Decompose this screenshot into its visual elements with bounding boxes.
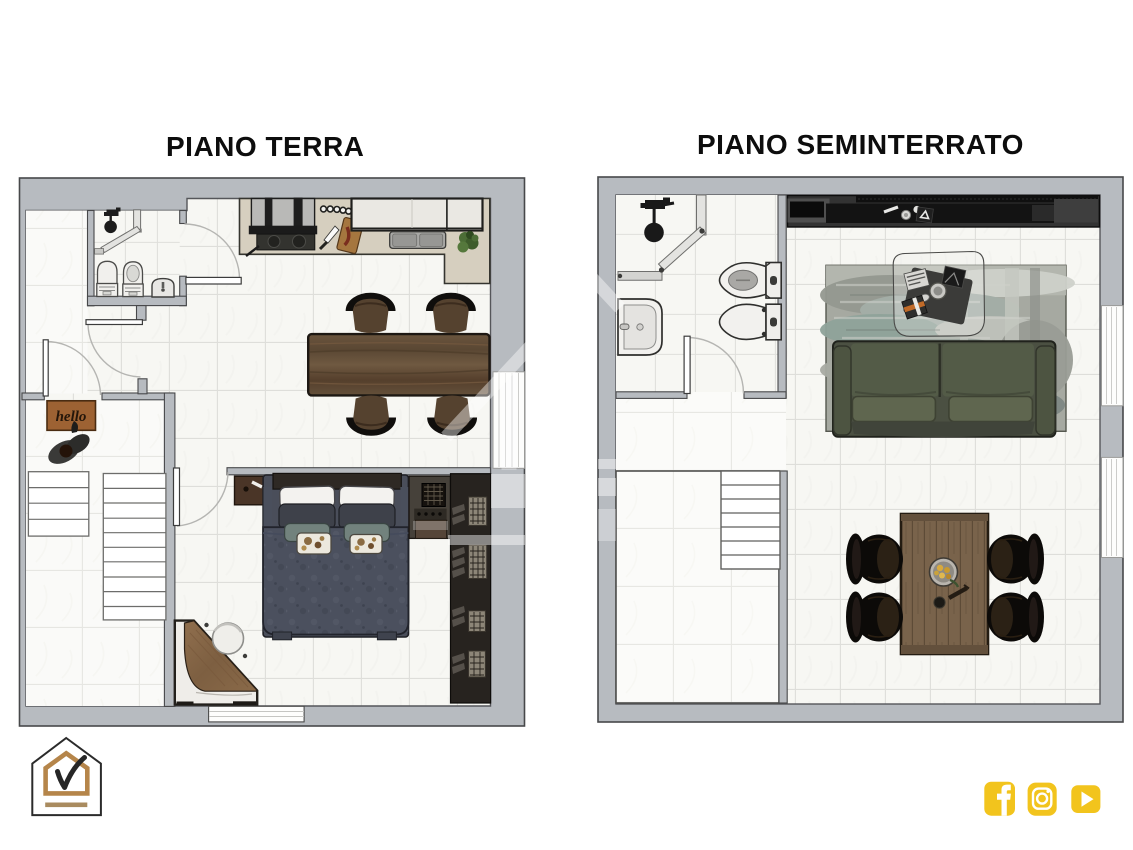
svg-text:hello: hello xyxy=(56,409,87,425)
